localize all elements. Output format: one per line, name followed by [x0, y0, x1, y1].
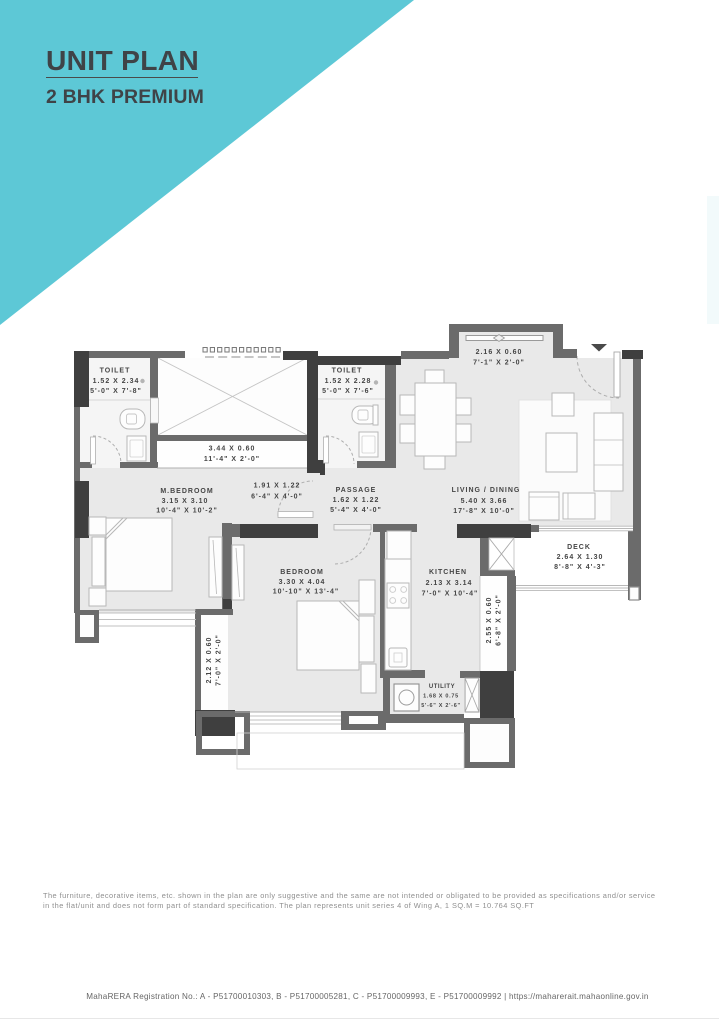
svg-text:3.30 X 4.04: 3.30 X 4.04 — [279, 579, 326, 586]
svg-text:5'-0" X 7'-6": 5'-0" X 7'-6" — [322, 388, 374, 395]
svg-text:LIVING / DINING: LIVING / DINING — [452, 487, 521, 494]
svg-text:TOILET: TOILET — [332, 368, 363, 375]
svg-text:5'-0" X 7'-8": 5'-0" X 7'-8" — [90, 388, 142, 395]
svg-text:2.12 X 0.60: 2.12 X 0.60 — [206, 637, 213, 684]
svg-text:5'-4" X 4'-0": 5'-4" X 4'-0" — [330, 507, 382, 514]
svg-text:1.52 X 2.28: 1.52 X 2.28 — [325, 378, 372, 385]
svg-text:TOILET: TOILET — [100, 368, 131, 375]
svg-text:3.44 X 0.60: 3.44 X 0.60 — [209, 446, 256, 453]
svg-text:DECK: DECK — [567, 544, 591, 551]
svg-text:BEDROOM: BEDROOM — [280, 569, 324, 576]
svg-text:5'-6" X 2'-6": 5'-6" X 2'-6" — [421, 703, 461, 709]
svg-text:5.40 X 3.66: 5.40 X 3.66 — [461, 498, 508, 505]
svg-text:UTILITY: UTILITY — [429, 684, 455, 690]
svg-text:7'-1" X 2'-0": 7'-1" X 2'-0" — [473, 360, 525, 367]
svg-text:1.68 X 0.75: 1.68 X 0.75 — [423, 694, 459, 700]
svg-text:11'-4" X 2'-0": 11'-4" X 2'-0" — [204, 456, 260, 463]
svg-text:KITCHEN: KITCHEN — [429, 569, 467, 576]
svg-text:3.15 X 3.10: 3.15 X 3.10 — [162, 498, 209, 505]
svg-text:6'-8" X 2'-0": 6'-8" X 2'-0" — [496, 594, 503, 646]
svg-text:2.13 X 3.14: 2.13 X 3.14 — [426, 580, 473, 587]
svg-text:PASSAGE: PASSAGE — [336, 487, 377, 494]
svg-text:1.91 X 1.22: 1.91 X 1.22 — [254, 483, 301, 490]
svg-text:2.55 X 0.60: 2.55 X 0.60 — [486, 597, 493, 644]
svg-text:2.64 X 1.30: 2.64 X 1.30 — [557, 554, 604, 561]
svg-text:10'-10" X 13'-4": 10'-10" X 13'-4" — [273, 589, 339, 596]
svg-text:6'-4" X 4'-0": 6'-4" X 4'-0" — [251, 494, 303, 501]
svg-text:1.52 X 2.34: 1.52 X 2.34 — [93, 378, 140, 385]
svg-text:2.16 X 0.60: 2.16 X 0.60 — [476, 349, 523, 356]
svg-text:M.BEDROOM: M.BEDROOM — [160, 488, 213, 495]
svg-text:8'-8" X 4'-3": 8'-8" X 4'-3" — [554, 564, 606, 571]
svg-text:10'-4" X 10'-2": 10'-4" X 10'-2" — [156, 508, 218, 515]
svg-text:17'-8" X 10'-0": 17'-8" X 10'-0" — [453, 508, 515, 515]
svg-text:7'-0" X 10'-4": 7'-0" X 10'-4" — [422, 591, 479, 598]
svg-text:7'-0" X 2'-0": 7'-0" X 2'-0" — [216, 634, 223, 686]
svg-text:1.62 X 1.22: 1.62 X 1.22 — [333, 497, 380, 504]
